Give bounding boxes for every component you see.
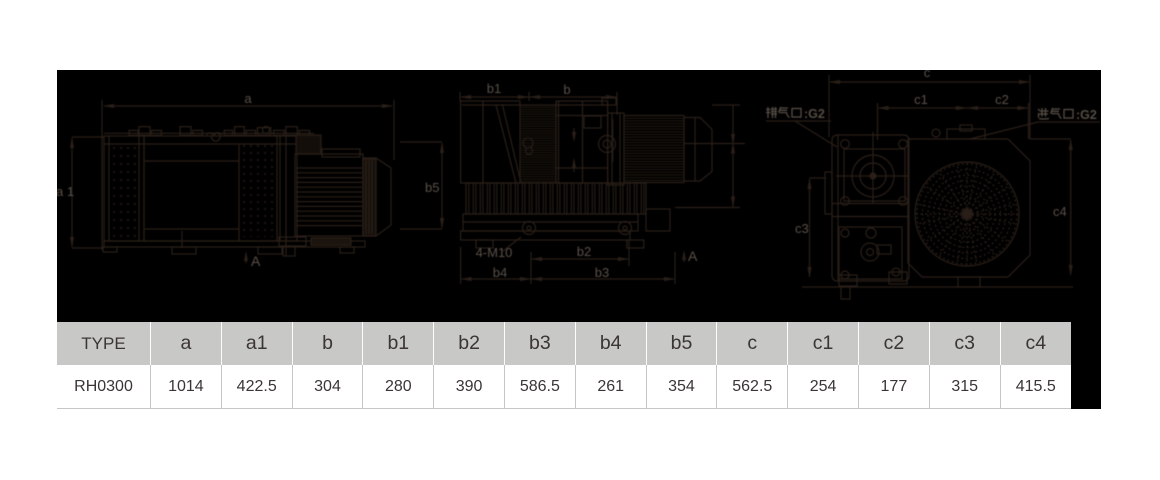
- svg-text::G2: :G2: [1076, 108, 1097, 122]
- svg-text:c3: c3: [795, 221, 809, 236]
- svg-text:b1: b1: [487, 81, 501, 96]
- svg-text:c1: c1: [914, 92, 928, 107]
- svg-text:b5: b5: [425, 180, 439, 195]
- svg-text:c4: c4: [1053, 204, 1067, 219]
- svg-text:b4: b4: [493, 265, 507, 280]
- svg-text:b2: b2: [577, 244, 591, 259]
- svg-text:A: A: [251, 253, 261, 269]
- svg-text:A: A: [688, 248, 698, 264]
- svg-text:a 1: a 1: [57, 184, 74, 199]
- svg-text:a: a: [244, 91, 252, 106]
- svg-text:b3: b3: [595, 265, 609, 280]
- svg-text:c: c: [924, 70, 931, 80]
- svg-text:c2: c2: [995, 92, 1009, 107]
- svg-text::G2: :G2: [804, 107, 825, 121]
- svg-text:4-M10: 4-M10: [476, 245, 513, 260]
- svg-text:b: b: [563, 82, 570, 97]
